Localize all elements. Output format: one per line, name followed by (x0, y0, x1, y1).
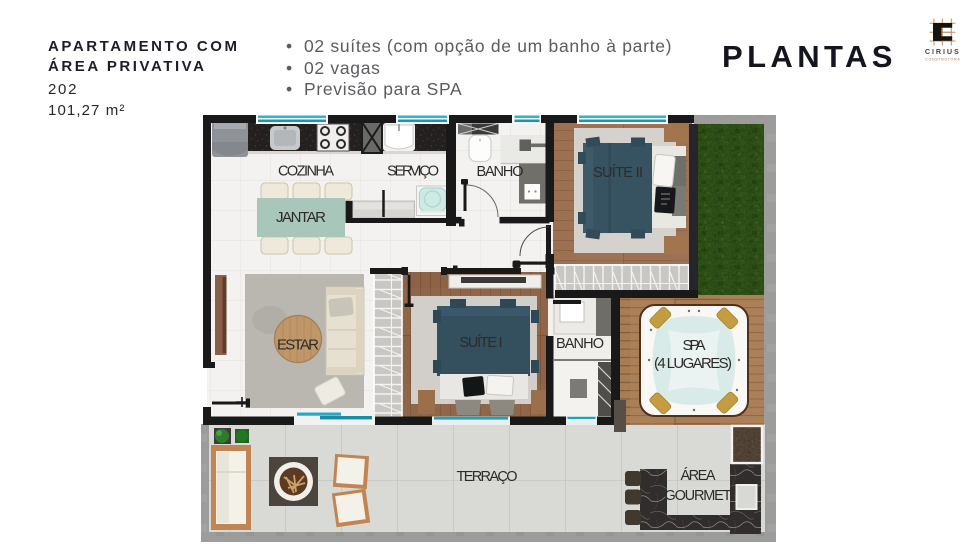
svg-text:ÁREA: ÁREA (681, 467, 716, 484)
svg-text:COZINHA: COZINHA (278, 164, 334, 180)
svg-text:JANTAR: JANTAR (276, 209, 326, 226)
svg-text:SPA: SPA (683, 337, 706, 354)
svg-text:SUÍTE II: SUÍTE II (593, 164, 643, 181)
svg-text:TERRAÇO: TERRAÇO (457, 469, 518, 485)
svg-text:BANHO: BANHO (477, 164, 524, 180)
svg-text:ESTAR: ESTAR (277, 337, 319, 354)
svg-text:GOURMET: GOURMET (665, 488, 732, 504)
svg-text:BANHO: BANHO (556, 336, 604, 352)
svg-text:SERVIÇO: SERVIÇO (387, 164, 439, 180)
svg-text:SUÍTE I: SUÍTE I (460, 334, 503, 351)
svg-text:(4 LUGARES): (4 LUGARES) (654, 355, 732, 372)
